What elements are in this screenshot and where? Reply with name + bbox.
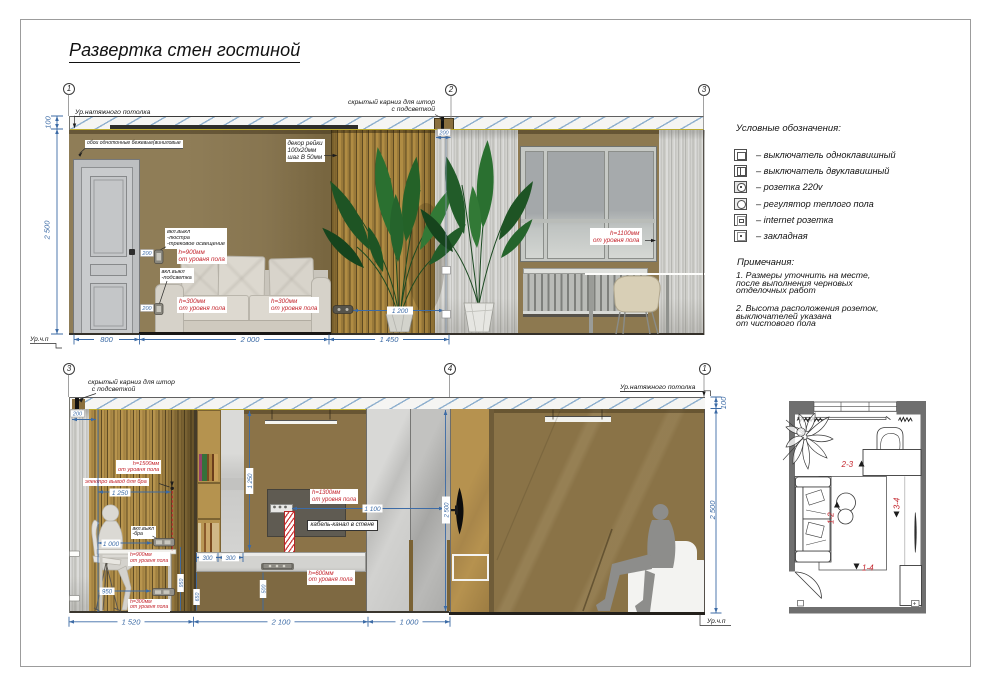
svg-text:2 500: 2 500 xyxy=(444,502,450,519)
svg-text:1 450: 1 450 xyxy=(380,335,400,344)
svg-text:950: 950 xyxy=(102,590,113,596)
svg-text:500: 500 xyxy=(262,585,268,594)
svg-text:200: 200 xyxy=(141,251,152,257)
svg-text:300: 300 xyxy=(202,556,213,562)
svg-text:200: 200 xyxy=(438,131,449,137)
svg-text:100: 100 xyxy=(719,396,728,409)
svg-text:100: 100 xyxy=(44,115,53,128)
svg-text:800: 800 xyxy=(100,335,113,344)
svg-text:300: 300 xyxy=(225,556,236,562)
svg-text:1 250: 1 250 xyxy=(248,473,254,489)
svg-text:1 000: 1 000 xyxy=(400,617,420,626)
svg-text:2 500: 2 500 xyxy=(43,220,52,241)
svg-text:2 100: 2 100 xyxy=(271,617,292,626)
svg-text:1 100: 1 100 xyxy=(364,506,381,513)
svg-text:200: 200 xyxy=(141,306,152,312)
svg-text:200: 200 xyxy=(72,412,83,418)
svg-text:1 000: 1 000 xyxy=(103,541,120,548)
svg-text:650: 650 xyxy=(195,593,201,602)
svg-text:1 200: 1 200 xyxy=(392,308,409,315)
svg-text:950: 950 xyxy=(179,579,185,588)
svg-text:1 250: 1 250 xyxy=(112,490,129,497)
svg-text:1 520: 1 520 xyxy=(122,617,142,626)
svg-text:2 000: 2 000 xyxy=(240,335,261,344)
svg-text:2 500: 2 500 xyxy=(708,500,717,521)
